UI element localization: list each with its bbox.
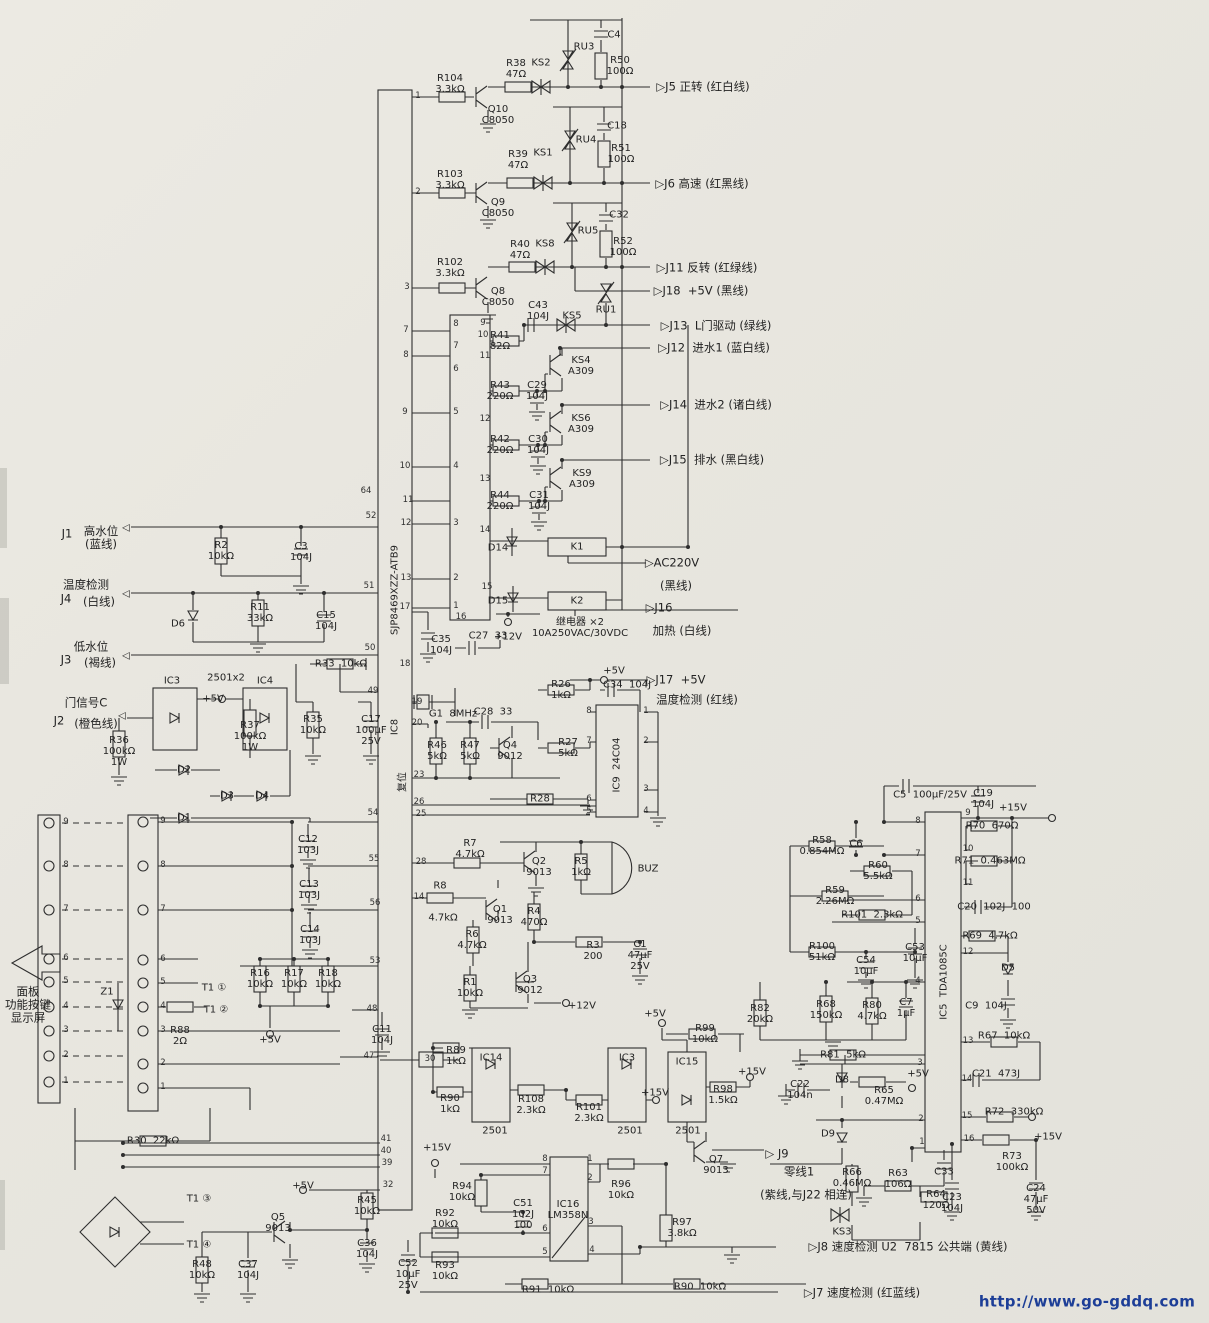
label-3: 3 [63,1026,68,1036]
d6: D6 [171,618,185,629]
d9: D9 [821,1128,835,1139]
r96: R96 10kΩ [608,1179,634,1201]
label-18: 18 [400,660,411,670]
r17: R17 10kΩ [281,968,307,990]
label-6: 6 [63,954,68,964]
c51: C51 102J 100 [512,1198,534,1232]
r70: R70 670Ω [966,820,1019,831]
c15: C15 104J [315,610,337,632]
label-7: 7 [542,1167,547,1177]
d4: D4 [255,790,269,801]
r81: R81 5kΩ [820,1049,866,1060]
c32: C32 [609,209,629,220]
t1a: T1 ① [202,982,227,993]
ic4: IC4 [257,675,273,686]
c54: C54 10μF [854,955,879,977]
r42: R42 220Ω [487,434,514,456]
p15v2: +15V [738,1066,766,1077]
label-2: 2 [918,1115,923,1125]
label-2: 2 [453,574,458,584]
o2501: 2501x2 [207,672,245,683]
r37: R37 100kΩ 1W [234,720,267,754]
label-1: 1 [415,92,420,102]
ic5v: IC5 TDA1085C [938,944,949,1020]
r94: R94 10kΩ [449,1181,475,1203]
ru5: RU5 [578,225,599,236]
j9: ▷ J9 [765,1148,788,1161]
ks8: KS8 [535,238,554,249]
label-9: 9 [480,319,485,329]
r99: R99 10kΩ [692,1023,718,1045]
j15: ▷J15 排水 (黑白线) [660,454,764,467]
relay: 继电器 ×2 10A250VAC/30VDC [532,617,628,639]
c24: C24 47μF 50V [1024,1183,1049,1217]
label-20: 20 [412,719,423,729]
r88: R88 2Ω [170,1025,190,1047]
label-1: 1 [643,707,648,717]
r98: R98 1.5kΩ [708,1084,737,1106]
label-11: 11 [403,496,414,506]
r3: R3 200 [583,940,602,962]
r11: R11 33kΩ [247,602,273,624]
ks2: KS2 [531,57,550,68]
label-3: 3 [917,1059,922,1069]
k1: K1 [571,541,584,552]
q10: Q10 C8050 [482,104,514,126]
label-1: 1 [587,1155,592,1165]
fuwei: 复位 [397,772,408,792]
label-15: 15 [482,583,493,593]
j16: ▷J16 [646,602,673,615]
ac220v: ▷AC220V [645,557,699,570]
ic8: IC8 [389,719,400,735]
wendu: 温度检测 (红线) [656,694,738,707]
c5: C5 100μF/25V [893,789,967,800]
g1: G1 8MHz [429,708,477,719]
c1: C1 47μF 25V [628,939,653,973]
p5v2: +5V [202,693,224,704]
label-16: 16 [456,613,467,623]
label-8: 8 [542,1155,547,1165]
r104: R104 3.3kΩ [435,73,464,95]
c29: C29 104J [526,380,548,402]
q1: Q1 9013 [487,904,512,926]
c22: C22 104n [787,1079,812,1101]
t1c: T1 ③ [187,1193,212,1204]
j13: ▷J13 L门驱动 (绿线) [661,320,772,333]
ic3b: IC3 [619,1052,635,1063]
label-7: 7 [586,737,591,747]
c19: C19 104J [972,788,994,810]
r48: R48 10kΩ [189,1259,215,1281]
ic15: IC15 [676,1056,699,1067]
r101c: R101 2.3kΩ [841,909,903,920]
label-13: 13 [480,475,491,485]
label-3: 3 [160,1026,165,1036]
ac220v2: (黑线) [660,580,692,593]
label-1: 1 [453,602,458,612]
j1t: 高水位 (蓝线) [84,525,119,551]
label-19: 19 [412,698,423,708]
label-17: 17 [400,603,411,613]
j3t: 低水位 [74,641,109,654]
ks1: KS1 [533,147,552,158]
c13: C13 103J [298,879,320,901]
label-23: 23 [414,771,425,781]
j16b: 加热 (白线) [653,625,712,638]
r40: R40 47Ω [510,239,530,261]
label-4: 4 [589,1246,594,1256]
r73: R73 100kΩ [996,1151,1029,1173]
ic9: IC9 24C04 [611,737,622,792]
label-8: 8 [453,320,458,330]
r44: R44 220Ω [487,490,514,512]
label-5: 5 [160,978,165,988]
r71: R71 0.463MΩ [955,855,1026,866]
r28: R28 [530,793,550,804]
label-8: 8 [915,817,920,827]
c43: C43 104J [527,300,549,322]
ks5: KS5 [562,310,581,321]
ks9: KS9 A309 [569,468,595,490]
r91: R91 10kΩ [522,1284,574,1295]
labels-layer: R104 3.3kΩR38 47ΩKS2RU3C4R50 100Ω▷J5 正转 … [0,0,1209,1323]
label-50: 50 [365,644,376,654]
c20: C20 102J 100 [957,901,1031,912]
r46: R46 5kΩ [427,740,447,762]
label-64: 64 [361,487,372,497]
r5: R5 1kΩ [571,856,591,878]
c52: C52 10μF 25V [396,1258,421,1292]
label-14: 14 [480,526,491,536]
r90a: R90 1kΩ [440,1093,460,1115]
r100: R100 51kΩ [809,941,835,963]
r80: R80 4.7kΩ [857,1000,886,1022]
d5: D5 [1001,962,1015,973]
r101b: R101 2.3kΩ [574,1102,603,1124]
ic16: IC16 LM358N [548,1199,589,1221]
j2t: 门信号C [65,697,108,710]
label-8: 8 [403,351,408,361]
c35: C35 104J [430,634,452,656]
d14: D14 [488,542,508,553]
label-54: 54 [368,809,379,819]
ic8v: SJP8469XZZ-ATB9 [389,545,400,635]
o2501b: 2501 [617,1125,642,1136]
label-7: 7 [160,905,165,915]
c11: C11 104J [371,1024,393,1046]
r60: R60 5.5kΩ [863,860,892,882]
d15: D15 [488,595,508,606]
label-7: 7 [403,326,408,336]
ic3: IC3 [164,675,180,686]
r51: R51 100Ω [608,143,635,165]
label-47: 47 [364,1052,375,1062]
ic14: IC14 [480,1052,503,1063]
ru3: RU3 [574,41,595,52]
c34: C34 104J [603,679,651,690]
label-15: 15 [962,1112,973,1122]
label-6: 6 [915,895,920,905]
d2: D2 [177,764,191,775]
r66: R66 0.46MΩ [833,1167,872,1189]
q8: Q8 C8050 [482,286,514,308]
label-25: 25 [416,810,427,820]
pin30: 30 [425,1055,436,1065]
j17: ▷J17 +5V [647,674,706,687]
c17: C17 100μF 25V [355,714,386,748]
label-1: 1 [63,1077,68,1087]
label-1: 1 [919,1138,924,1148]
j2: J2 [54,715,65,728]
c12: C12 103J [297,834,319,856]
p5v4: +5V [292,1180,314,1191]
label-4: 4 [63,1002,68,1012]
label-11: 11 [963,879,974,889]
o2501a: 2501 [482,1125,507,1136]
r8v: 4.7kΩ [428,912,457,923]
r47: R47 5kΩ [460,740,480,762]
label-48: 48 [367,1005,378,1015]
r7: R7 4.7kΩ [455,838,484,860]
r93: R93 10kΩ [432,1260,458,1282]
label-9: 9 [63,818,68,828]
arr-j3: ◁ [122,650,130,661]
r41: R41 82Ω [490,330,510,352]
label-2: 2 [587,1174,592,1184]
j6: ▷J6 高速 (红黑线) [655,178,748,191]
c4: C4 [607,29,620,40]
r97: R97 3.8kΩ [667,1217,696,1239]
r38: R38 47Ω [506,58,526,80]
label-5: 5 [63,977,68,987]
label-9: 9 [402,408,407,418]
label-26: 26 [414,798,425,808]
t1d: T1 ④ [187,1239,212,1250]
p5v5: +5V [644,1008,666,1019]
r2: R2 10kΩ [208,540,234,562]
r50: R50 100Ω [607,55,634,77]
r63: R63 106Ω [885,1168,912,1190]
t1b: T1 ② [204,1004,229,1015]
label-16: 16 [964,1135,975,1145]
label-3: 3 [404,283,409,293]
j12: ▷J12 进水1 (蓝白线) [658,342,770,355]
arr-j1: ◁ [122,522,130,533]
arr-j4: ◁ [122,588,130,599]
r45: R45 10kΩ [354,1195,380,1217]
label-2: 2 [415,188,420,198]
q9: Q9 C8050 [482,197,514,219]
p5v6: +5V [907,1068,929,1079]
label-10: 10 [400,462,411,472]
label-2: 2 [160,1059,165,1069]
r102: R102 3.3kΩ [435,257,464,279]
label-4: 4 [915,977,920,987]
o2501c: 2501 [675,1125,700,1136]
r27: R27 5kΩ [558,737,578,759]
r82: R82 20kΩ [747,1003,773,1025]
r4: R4 470Ω [521,906,548,928]
q5: Q5 9013 [265,1212,290,1234]
label-12: 12 [963,948,974,958]
c23: C23 104J [941,1192,963,1214]
label-13: 13 [963,1037,974,1047]
c7: C7 1μF [897,997,915,1019]
p12v2: +12V [568,1000,596,1011]
r33: R33 10kΩ [315,658,367,669]
r69: R69 4.7kΩ [962,930,1017,941]
label-5: 5 [542,1248,547,1258]
label-8: 8 [586,707,591,717]
r103: R103 3.3kΩ [435,169,464,191]
label-8: 8 [160,861,165,871]
label-8: 8 [63,861,68,871]
label-40: 40 [381,1147,392,1157]
j8: ▷J8 速度检测 U2 7815 公共端 (黄线) [809,1241,1008,1254]
label-7: 7 [63,905,68,915]
label-14: 14 [414,893,425,903]
r90b: R90 10kΩ [674,1281,726,1292]
label-32: 32 [383,1181,394,1191]
r43: R43 220Ω [487,380,514,402]
j4b: (白线) [83,596,115,609]
label-3: 3 [643,785,648,795]
label-4: 4 [160,1002,165,1012]
d8: D8 [835,1074,849,1085]
schematic-page: R104 3.3kΩR38 47ΩKS2RU3C4R50 100Ω▷J5 正转 … [0,0,1209,1323]
c28: C28 33 [474,706,513,717]
j9c: (紫线,与J22 相连) [760,1189,852,1202]
ks6: KS6 A309 [568,413,594,435]
label-2: 2 [63,1051,68,1061]
label-28: 28 [416,858,427,868]
label-41: 41 [381,1135,392,1145]
q3: Q3 9012 [517,974,542,996]
r68: R68 150kΩ [810,999,843,1021]
ks4: KS4 A309 [568,355,594,377]
r58: R58 0.854MΩ [800,835,845,857]
r92: R92 10kΩ [432,1208,458,1230]
c14: C14 103J [299,924,321,946]
j14: ▷J14 进水2 (诸白线) [660,399,772,412]
c33: C33 [934,1166,954,1177]
c30: C30 104J [527,434,549,456]
label-6: 6 [453,365,458,375]
k2: K2 [571,595,584,606]
r16: R16 10kΩ [247,968,273,990]
label-7: 7 [915,850,920,860]
p5v3: +5V [259,1034,281,1045]
r52: R52 100Ω [610,236,637,258]
r35: R35 10kΩ [300,714,326,736]
q7: Q7 9013 [703,1154,728,1176]
z1: Z1 [100,986,113,997]
r6: R6 4.7kΩ [457,929,486,951]
watermark: http://www.go-gddq.com [979,1294,1195,1311]
r108: R108 2.3kΩ [516,1094,545,1116]
label-4: 4 [643,807,648,817]
label-11: 11 [480,352,491,362]
ru4: RU4 [576,134,597,145]
label-6: 6 [586,795,591,805]
c37: C37 104J [237,1259,259,1281]
r67: R67 10kΩ [978,1030,1030,1041]
p15v5: +15V [1034,1131,1062,1142]
j5: ▷J5 正转 (红白线) [656,81,749,94]
r72: R72 330kΩ [985,1106,1044,1117]
label-6: 6 [160,955,165,965]
label-12: 12 [401,519,412,529]
label-51: 51 [364,582,375,592]
q4: Q4 9012 [497,740,522,762]
j2b: (橙色线) [74,718,117,731]
label-55: 55 [369,855,380,865]
r36: R36 100kΩ 1W [103,735,136,769]
label-6: 6 [542,1225,547,1235]
j18: ▷J18 +5V (黑线) [654,285,749,298]
j3b: (褐线) [84,657,116,670]
c36: C36 104J [356,1238,378,1260]
c6: C6 [849,838,862,849]
label-4: 4 [453,462,458,472]
label-14: 14 [962,1075,973,1085]
c9: C9 104J [965,1000,1007,1011]
label-1: 1 [160,1083,165,1093]
p15v3: +15V [423,1142,451,1153]
p5v1: +5V [603,665,625,676]
c21: C21 473J [972,1068,1020,1079]
label-5: 5 [453,408,458,418]
d3: D3 [220,790,234,801]
j9b: 零线1 [784,1166,814,1179]
r1: R1 10kΩ [457,977,483,999]
r18: R18 10kΩ [315,968,341,990]
c27: C27 33 [469,630,508,641]
ks3: KS3 [832,1226,851,1237]
ru1: RU1 [596,304,617,315]
label-49: 49 [368,687,379,697]
buz: BUZ [638,863,659,874]
label-13: 13 [401,574,412,584]
label-9: 9 [965,809,970,819]
r30: R30 22kΩ [127,1135,179,1146]
j1: J1 [62,528,73,541]
r65: R65 0.47MΩ [865,1085,904,1107]
label-5: 5 [586,807,591,817]
p15v4: +15V [999,802,1027,813]
label-53: 53 [370,957,381,967]
label-10: 10 [478,331,489,341]
r39: R39 47Ω [508,149,528,171]
j4: J4 [61,593,72,606]
label-9: 9 [160,817,165,827]
j7: ▷J7 速度检测 (红蓝线) [804,1287,920,1300]
label-56: 56 [370,899,381,909]
c3: C3 104J [290,541,312,563]
r26: R26 1kΩ [551,679,571,701]
arr-j2: ◁ [118,710,126,721]
c53: C53 10μF [903,942,928,964]
j3: J3 [61,654,72,667]
label-5: 5 [915,917,920,927]
r59: R59 2.26MΩ [816,885,855,907]
r89: R89 1kΩ [446,1045,466,1067]
j11: ▷J11 反转 (红绿线) [657,262,758,275]
label-3: 3 [588,1218,593,1228]
label-7: 7 [453,342,458,352]
label-39: 39 [382,1159,393,1169]
